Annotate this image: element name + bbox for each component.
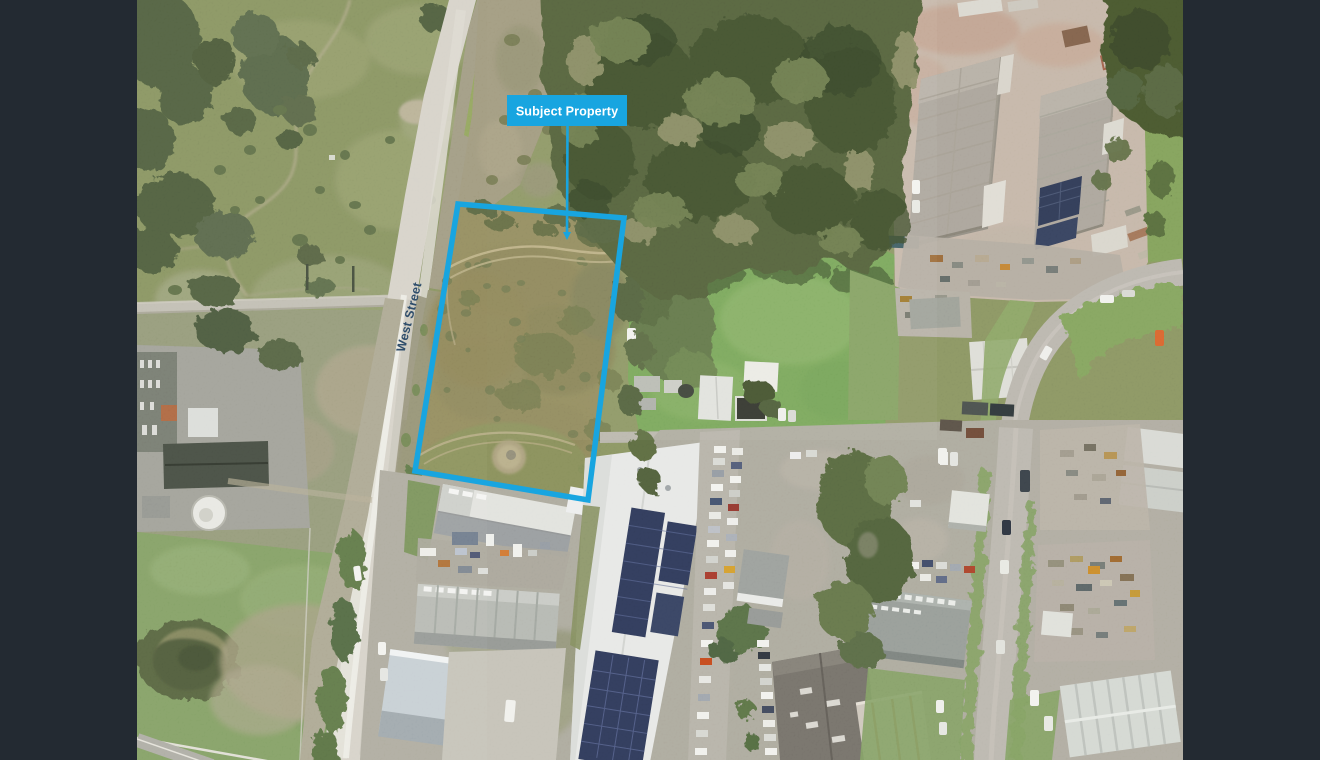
svg-text:Subject Property: Subject Property <box>516 105 618 119</box>
